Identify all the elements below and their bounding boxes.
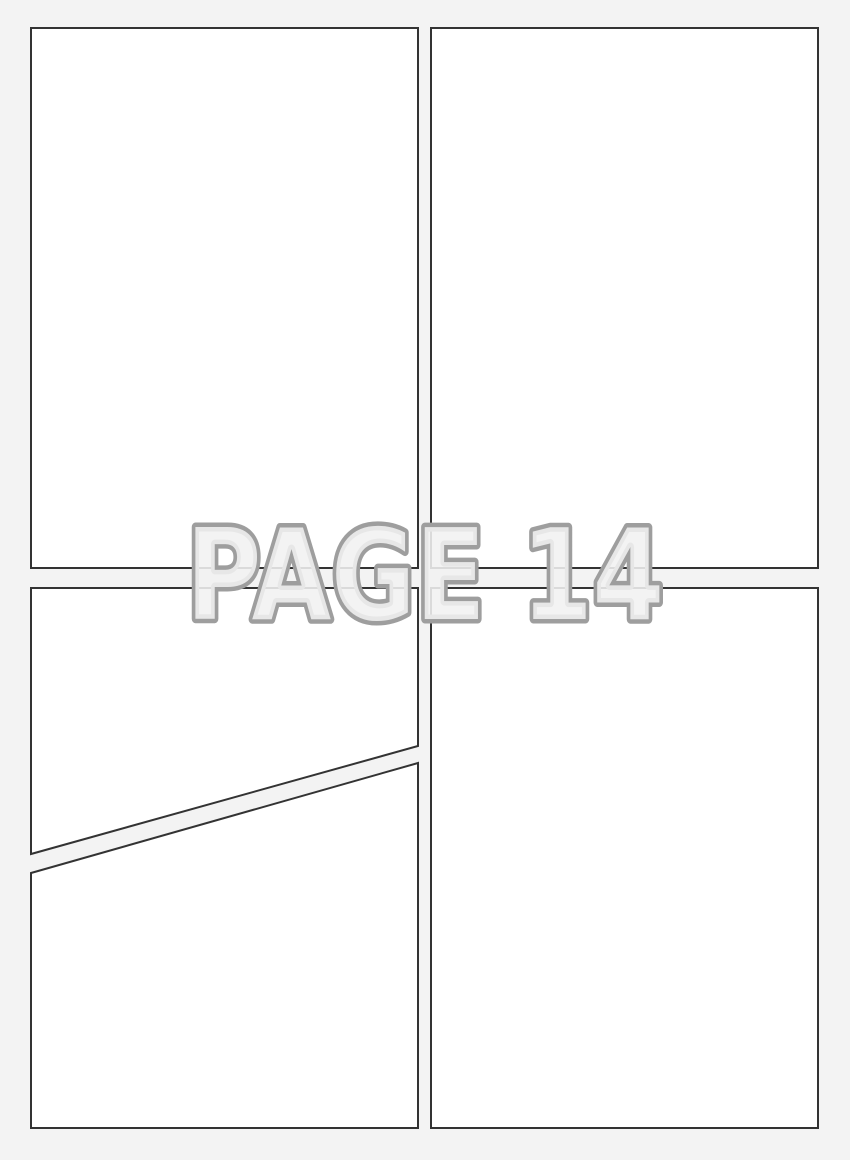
comic-panel-bottom-right xyxy=(430,587,819,1129)
comic-panel-top-left xyxy=(30,27,419,569)
comic-panel-top-right xyxy=(430,27,819,569)
comic-page-template: PAGE 14 xyxy=(0,0,850,1160)
comic-panel-bottom-left-group xyxy=(30,587,419,1129)
